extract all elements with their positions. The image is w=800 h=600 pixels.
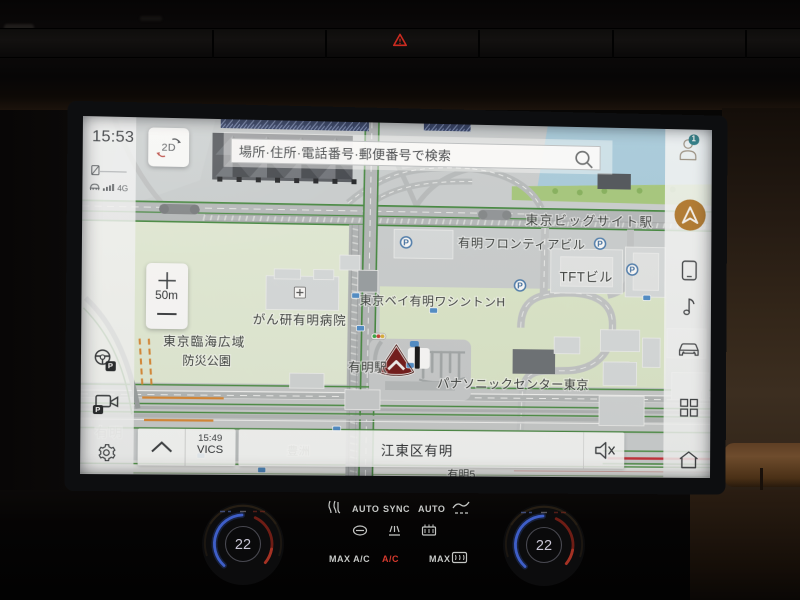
svg-text:4G: 4G [117, 184, 128, 193]
svg-text:P: P [629, 265, 635, 275]
svg-text:有明5: 有明5 [447, 467, 475, 478]
svg-text:防災公園: 防災公園 [182, 353, 231, 368]
svg-text:がん研有明病院: がん研有明病院 [253, 313, 347, 328]
svg-text:TFTビル: TFTビル [560, 270, 613, 285]
svg-text:有明フロンティアビル: 有明フロンティアビル [458, 237, 586, 253]
svg-text:東京臨海広域: 東京臨海広域 [163, 335, 245, 350]
svg-text:東京ビッグサイト駅: 東京ビッグサイト駅 [525, 213, 653, 230]
svg-text:P: P [517, 281, 523, 291]
svg-text:P: P [597, 239, 603, 249]
svg-text:東京ベイ有明ワシントンH: 東京ベイ有明ワシントンH [360, 294, 506, 310]
svg-text:22: 22 [536, 538, 552, 554]
svg-text:パナソニックセンター東京: パナソニックセンター東京 [437, 377, 589, 392]
svg-text:P: P [403, 238, 409, 248]
svg-text:22: 22 [235, 537, 251, 553]
svg-text:有明駅: 有明駅 [348, 361, 387, 375]
